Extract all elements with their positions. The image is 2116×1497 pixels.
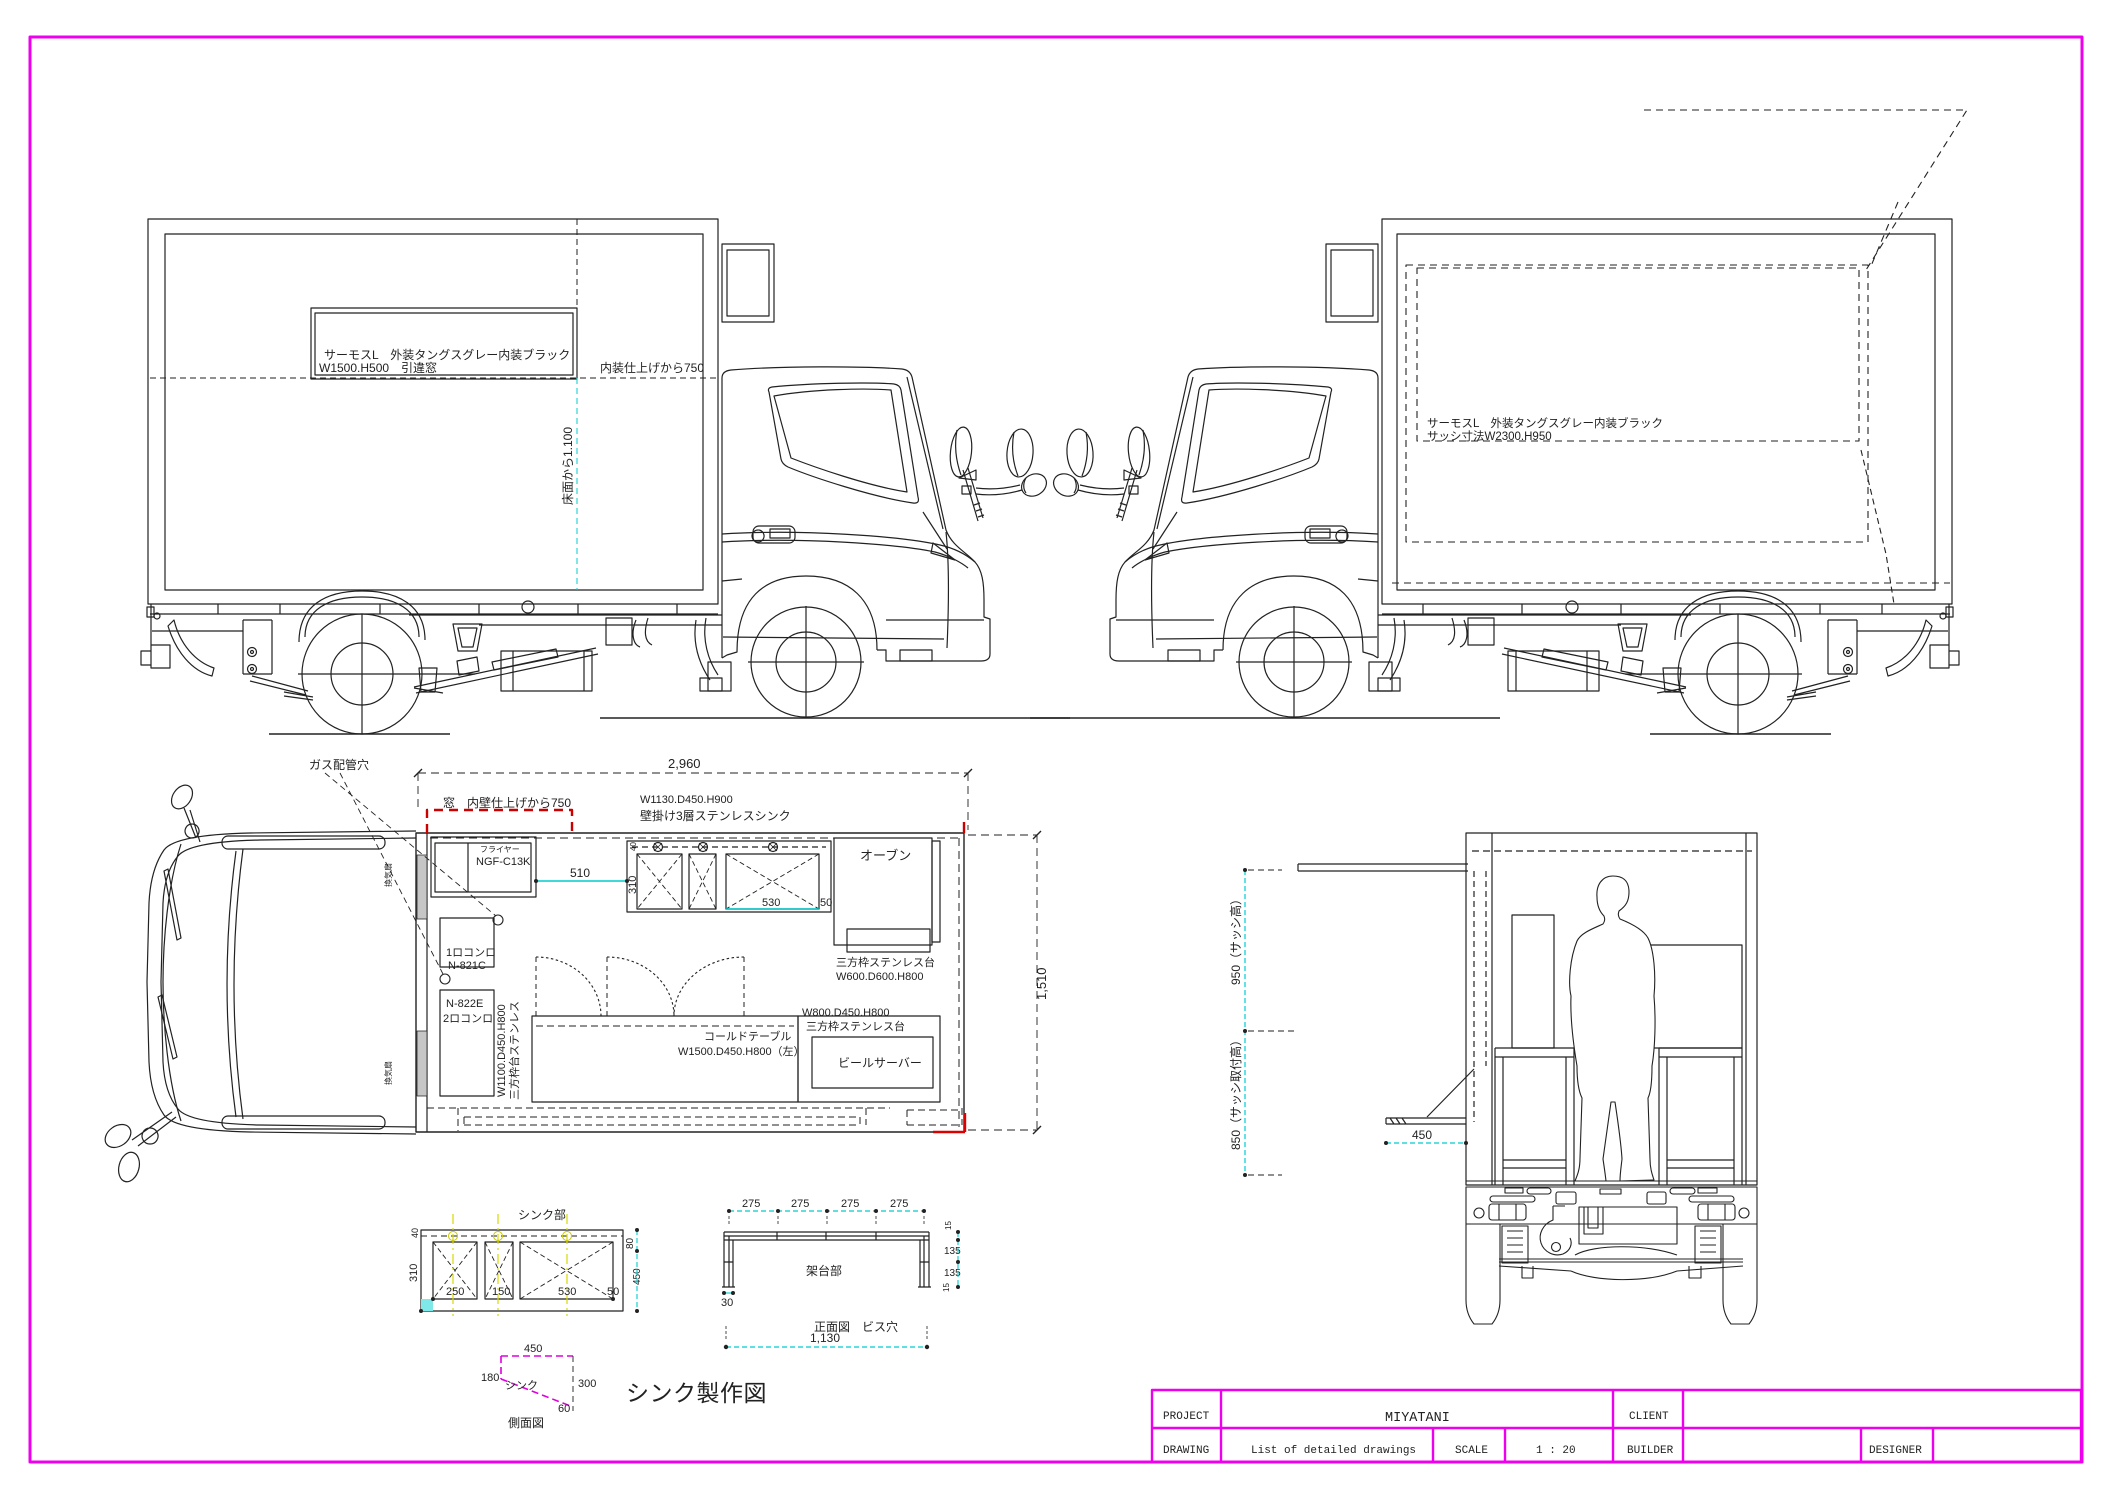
svg-text:三方枠ステンレス台: 三方枠ステンレス台 bbox=[836, 955, 935, 969]
svg-text:30: 30 bbox=[721, 1297, 733, 1309]
svg-text:1,130: 1,130 bbox=[810, 1331, 840, 1345]
svg-text:275: 275 bbox=[841, 1198, 859, 1210]
svg-text:310: 310 bbox=[627, 876, 639, 894]
svg-text:壁掛け3層ステンレスシンク: 壁掛け3層ステンレスシンク bbox=[640, 808, 791, 823]
svg-text:床面から1.100: 床面から1.100 bbox=[561, 427, 575, 505]
svg-text:DRAWING: DRAWING bbox=[1163, 1445, 1209, 1457]
svg-text:180: 180 bbox=[481, 1372, 499, 1384]
svg-text:W1100.D450.H800: W1100.D450.H800 bbox=[496, 1004, 508, 1097]
svg-text:ガス配管穴: ガス配管穴 bbox=[309, 757, 369, 772]
svg-text:50: 50 bbox=[607, 1286, 619, 1298]
svg-text:MIYATANI: MIYATANI bbox=[1385, 1411, 1450, 1426]
svg-text:300: 300 bbox=[578, 1378, 596, 1390]
svg-text:サッシ寸法W2300.H950: サッシ寸法W2300.H950 bbox=[1427, 429, 1552, 443]
svg-text:450: 450 bbox=[1412, 1128, 1432, 1142]
svg-text:450: 450 bbox=[524, 1343, 542, 1355]
svg-text:W1130.D450.H900: W1130.D450.H900 bbox=[640, 794, 733, 806]
svg-text:三方枠ステンレス台: 三方枠ステンレス台 bbox=[806, 1019, 905, 1033]
svg-text:N-822E: N-822E bbox=[446, 998, 483, 1010]
svg-text:1 : 20: 1 : 20 bbox=[1536, 1445, 1576, 1457]
svg-text:ビールサーバー: ビールサーバー bbox=[838, 1056, 922, 1070]
svg-text:40: 40 bbox=[629, 842, 638, 851]
svg-text:架台部: 架台部 bbox=[806, 1263, 842, 1278]
svg-text:530: 530 bbox=[558, 1286, 576, 1298]
svg-text:40: 40 bbox=[410, 1228, 420, 1238]
svg-text:PROJECT: PROJECT bbox=[1163, 1411, 1210, 1423]
svg-text:換気扇: 換気扇 bbox=[383, 1061, 393, 1085]
svg-text:250: 250 bbox=[446, 1286, 464, 1298]
svg-text:15: 15 bbox=[942, 1283, 951, 1292]
svg-text:SCALE: SCALE bbox=[1455, 1445, 1488, 1457]
svg-text:275: 275 bbox=[791, 1198, 809, 1210]
svg-text:サーモスL 外装タングスグレー内装ブラック: サーモスL 外装タングスグレー内装ブラック bbox=[324, 347, 570, 362]
svg-text:N-821C: N-821C bbox=[448, 960, 486, 972]
svg-text:50: 50 bbox=[820, 897, 832, 909]
svg-text:275: 275 bbox=[742, 1198, 760, 1210]
svg-text:フライヤー: フライヤー bbox=[480, 845, 520, 854]
svg-text:1,510: 1,510 bbox=[1034, 967, 1049, 1000]
svg-text:W600.D600.H800: W600.D600.H800 bbox=[836, 971, 923, 983]
svg-text:2ロコンロ: 2ロコンロ bbox=[443, 1013, 493, 1025]
svg-text:CLIENT: CLIENT bbox=[1629, 1411, 1669, 1423]
svg-text:950（サッシ高）: 950（サッシ高） bbox=[1228, 893, 1243, 985]
svg-text:側面図: 側面図 bbox=[508, 1416, 544, 1430]
svg-text:NGF-C13K: NGF-C13K bbox=[476, 856, 531, 868]
svg-text:内装仕上げから750: 内装仕上げから750 bbox=[600, 361, 704, 375]
svg-text:W1500.D450.H800（左）: W1500.D450.H800（左） bbox=[678, 1045, 805, 1058]
svg-text:135: 135 bbox=[944, 1246, 961, 1257]
svg-text:850（サッシ取付高）: 850（サッシ取付高） bbox=[1228, 1034, 1243, 1150]
svg-text:オーブン: オーブン bbox=[860, 848, 911, 863]
svg-text:シンク部: シンク部 bbox=[518, 1207, 566, 1222]
svg-text:135: 135 bbox=[944, 1268, 961, 1279]
svg-text:15: 15 bbox=[944, 1221, 953, 1230]
svg-text:コールドテーブル: コールドテーブル bbox=[704, 1029, 791, 1043]
svg-text:BUILDER: BUILDER bbox=[1627, 1445, 1674, 1457]
svg-text:サーモスL 外装タングスグレー内装ブラック: サーモスL 外装タングスグレー内装ブラック bbox=[1427, 416, 1663, 430]
svg-text:シンク: シンク bbox=[505, 1379, 538, 1392]
svg-text:2,960: 2,960 bbox=[668, 756, 701, 771]
svg-text:シンク製作図: シンク製作図 bbox=[626, 1380, 767, 1406]
svg-text:1ロコンロ: 1ロコンロ bbox=[446, 947, 496, 959]
svg-text:三方枠台ステンレス: 三方枠台ステンレス bbox=[507, 1001, 521, 1100]
svg-text:80: 80 bbox=[625, 1237, 636, 1249]
svg-text:60: 60 bbox=[558, 1403, 570, 1415]
svg-text:510: 510 bbox=[570, 866, 590, 880]
svg-text:DESIGNER: DESIGNER bbox=[1869, 1445, 1922, 1457]
svg-text:530: 530 bbox=[762, 897, 780, 909]
svg-text:275: 275 bbox=[890, 1198, 908, 1210]
svg-text:窓 内壁仕上げから750: 窓 内壁仕上げから750 bbox=[443, 795, 571, 810]
svg-text:150: 150 bbox=[492, 1286, 510, 1298]
svg-text:W800.D450.H800: W800.D450.H800 bbox=[802, 1007, 889, 1019]
svg-text:List of detailed drawings: List of detailed drawings bbox=[1251, 1445, 1416, 1457]
svg-text:W1500.H500 引違窓: W1500.H500 引違窓 bbox=[319, 360, 437, 375]
svg-text:310: 310 bbox=[408, 1264, 420, 1282]
